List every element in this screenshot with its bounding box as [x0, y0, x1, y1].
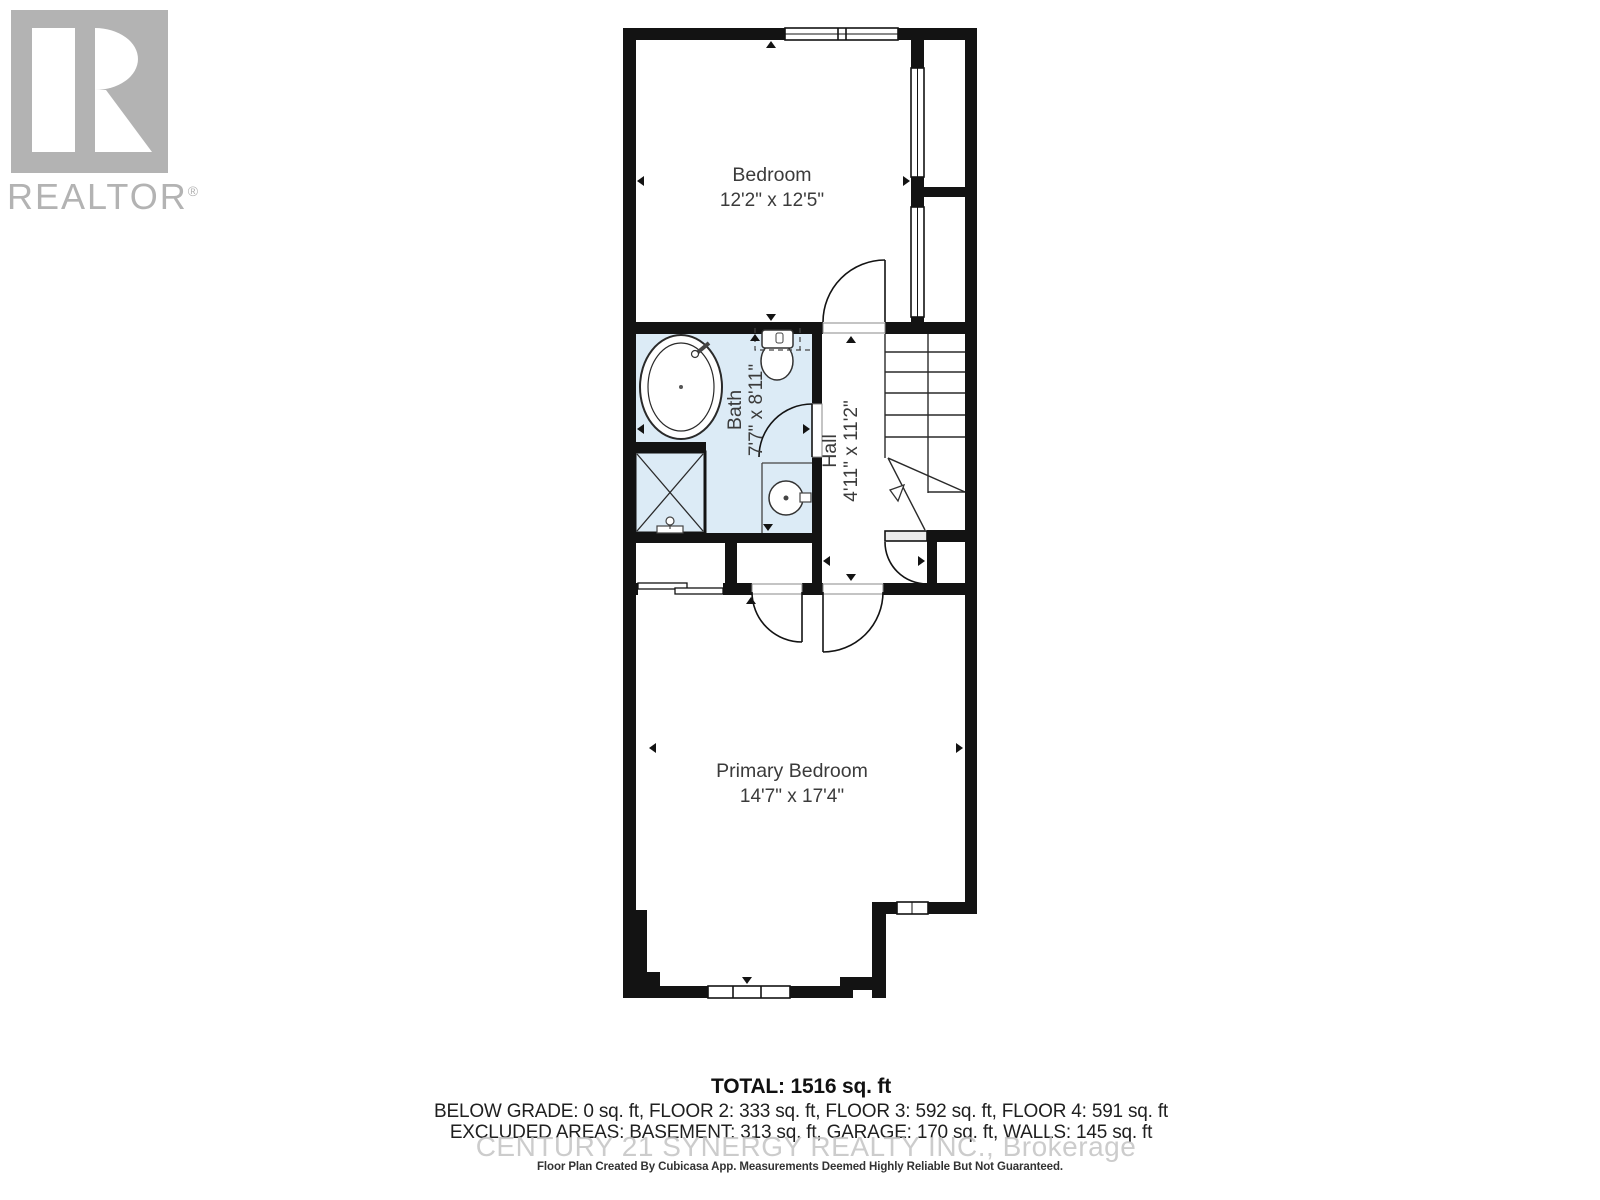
toilet-button [776, 333, 783, 343]
bath-dimensions: 7'7" x 8'11" [746, 364, 768, 456]
room-label-bath: Bath 7'7" x 8'11" [724, 364, 768, 456]
disclaimer-text: Floor Plan Created By Cubicasa App. Meas… [537, 1161, 1063, 1173]
opening-closet-door [752, 584, 802, 594]
wall-bedroom-bottom-right [885, 322, 965, 334]
sink-tap [800, 493, 811, 502]
opening-bedroom-door [823, 323, 885, 333]
bedroom-name: Bedroom [720, 163, 824, 188]
wall-left-step [623, 910, 647, 972]
room-label-hall: Hall 4'11" x 11'2" [819, 400, 863, 501]
realtor-brand: REALTOR [7, 176, 188, 217]
bath-name: Bath [724, 364, 746, 456]
registered-mark: ® [188, 183, 198, 199]
wall-lower-1 [623, 583, 638, 595]
floor-areas-text: BELOW GRADE: 0 sq. ft, FLOOR 2: 333 sq. … [434, 1101, 1168, 1123]
primary-bedroom-name: Primary Bedroom [716, 758, 868, 784]
wall-notch-vertical [872, 902, 886, 998]
wall-bath-right-upper [812, 334, 822, 404]
hall-dimensions: 4'11" x 11'2" [841, 400, 863, 501]
wall-lower-3 [802, 583, 823, 595]
wall-landing-vertical [927, 530, 937, 583]
bedroom-dimensions: 12'2" x 12'5" [720, 188, 824, 213]
realtor-logo [11, 10, 168, 173]
window-primary-bottom [708, 986, 790, 998]
realtor-watermark-text: REALTOR® [7, 176, 198, 218]
stair-direction-arrow [890, 485, 904, 501]
staircase [885, 334, 965, 530]
room-label-bedroom: Bedroom 12'2" x 12'5" [720, 163, 824, 213]
floor-plan-page: { "logo": { "brand": "REALTOR", "registe… [0, 0, 1600, 1200]
wall-lower-4 [883, 583, 977, 595]
wall-strip-divider [920, 187, 965, 197]
closet-slider-panel-2 [675, 588, 723, 594]
brokerage-watermark: CENTURY 21 SYNERGY REALTY INC., Brokerag… [476, 1131, 1137, 1163]
hall-name: Hall [819, 400, 841, 501]
wall-right [965, 28, 977, 914]
wall-lower-2 [723, 583, 752, 595]
realtor-logo-r-stem [32, 28, 75, 152]
closet-door-arc [752, 592, 802, 642]
primary-bedroom-dimensions: 14'7" x 17'4" [716, 784, 868, 810]
bedroom-door-arc [823, 260, 885, 322]
primary-door-arc [823, 592, 883, 652]
total-area-text: TOTAL: 1516 sq. ft [711, 1075, 891, 1099]
room-label-primary-bedroom: Primary Bedroom 14'7" x 17'4" [716, 758, 868, 810]
opening-primary-door [823, 584, 883, 594]
landing-door-panel [885, 531, 927, 541]
